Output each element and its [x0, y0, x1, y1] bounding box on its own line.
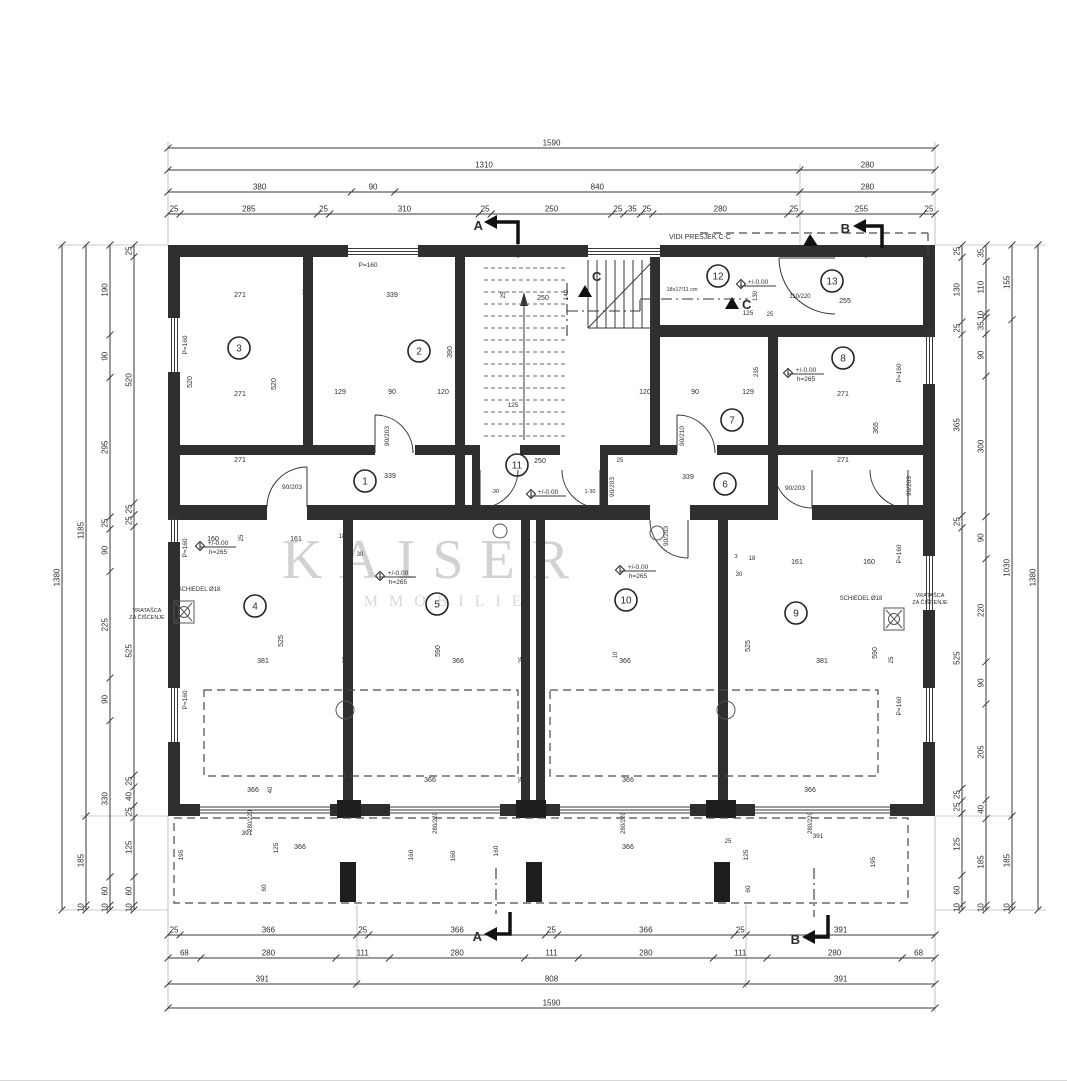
plan-label: 271	[234, 391, 246, 398]
dim-label: 25	[953, 323, 962, 332]
section-b-bottom-label: B	[791, 932, 800, 947]
dim-label: 25	[613, 205, 622, 214]
plan-label: 195	[178, 849, 185, 860]
plan-label: h=265	[389, 579, 408, 586]
plan-label: 195	[870, 856, 877, 867]
wall-room11-right	[600, 455, 608, 505]
plan-label: P=160	[896, 363, 903, 382]
plan-label: 590	[435, 645, 442, 657]
dim-label: 60	[101, 886, 110, 895]
plan-label: 110/220	[789, 294, 811, 300]
plan-label: 10	[302, 290, 309, 296]
dim-label: 205	[977, 745, 986, 759]
plan-label: 40	[268, 786, 274, 793]
dim-label: 25	[170, 926, 179, 935]
plan-label: 25	[519, 776, 525, 783]
dim-label: 391	[256, 975, 270, 984]
plan-label: 590	[872, 647, 879, 659]
floor-plan-drawing: KAISER IMMOBILIE 15901310280380908402802…	[0, 0, 1067, 1080]
plan-label: 25	[725, 839, 732, 845]
wall-hall-top	[180, 445, 375, 455]
plan-label: 366	[452, 658, 464, 665]
door-room2	[375, 415, 413, 453]
plan-label: 520	[187, 376, 194, 388]
dim-label: 90	[977, 533, 986, 542]
plan-label: 365	[873, 422, 880, 434]
room-number: 1	[362, 477, 368, 488]
room-number: 5	[434, 600, 440, 611]
plan-label: 366	[622, 844, 634, 851]
room-number: 12	[712, 272, 724, 283]
dim-label: 380	[253, 183, 267, 192]
plan-label: 90/203	[663, 526, 670, 546]
plan-label: 90/203	[609, 477, 616, 497]
dim-label: 520	[125, 373, 134, 387]
plan-label: 366	[294, 844, 306, 851]
plan-label: 280/220	[621, 812, 627, 834]
dim-label: 40	[125, 791, 134, 800]
dim-label: 391	[834, 975, 848, 984]
section-b-bottom-arrow-icon	[802, 930, 815, 944]
plan-label: 390	[447, 346, 454, 358]
wall-left	[168, 245, 180, 318]
plan-label: 90	[691, 389, 699, 396]
dim-label: 130	[953, 282, 962, 296]
section-a-bottom-arrow-icon	[484, 927, 497, 941]
plan-label: VIDI PRESJEK C-C	[669, 234, 731, 241]
wall-room11-top	[600, 445, 660, 455]
room-number: 7	[729, 416, 735, 427]
dim-label: 110	[977, 280, 986, 293]
wall-room11-top	[465, 445, 480, 455]
dim-label: 111	[734, 949, 747, 958]
plan-label: 25	[617, 458, 624, 464]
plan-label: P=160	[182, 690, 189, 709]
dim-label: 280	[861, 161, 875, 170]
dim-label: 310	[398, 205, 412, 214]
dim-label: 525	[125, 644, 134, 658]
wall-central	[168, 505, 267, 520]
plan-label: P=160	[896, 696, 903, 715]
section-a-bottom-label: A	[473, 929, 483, 944]
dim-label: 366	[262, 926, 276, 935]
plan-label: 25	[239, 534, 245, 541]
dim-label: 25	[953, 790, 962, 799]
wall-hall-top	[415, 445, 455, 455]
plan-label: 271	[234, 292, 246, 299]
party-wall	[536, 520, 545, 816]
dim-label: 185	[1003, 853, 1012, 867]
plan-label: 160	[493, 845, 500, 856]
window-left	[172, 318, 178, 372]
plan-label: 271	[234, 457, 246, 464]
dim-label: 25	[125, 807, 134, 816]
window-bottom	[390, 807, 500, 813]
dim-label: 1030	[1003, 558, 1012, 576]
plan-label: P=160	[359, 262, 378, 269]
dim-label: 60	[953, 885, 962, 894]
plan-label: 271	[837, 457, 849, 464]
plan-label: 25	[767, 312, 774, 318]
dim-label: 285	[242, 205, 256, 214]
pillar	[337, 800, 361, 818]
dim-label: 25	[481, 205, 490, 214]
window-bottom	[755, 807, 890, 813]
dim-label: 25	[319, 205, 328, 214]
dim-label: 68	[180, 949, 189, 958]
wall-bottom	[168, 804, 200, 816]
plan-label: +/-0.00	[748, 279, 769, 286]
plan-label: 125	[273, 842, 280, 853]
plan-label: 120	[639, 389, 651, 396]
wall-left	[168, 372, 180, 516]
plan-label: 129	[334, 389, 346, 396]
plan-label: 140	[564, 289, 570, 300]
dim-label: 25	[736, 926, 745, 935]
balcony-outline-left	[204, 690, 518, 776]
plan-label: 280/220	[248, 810, 254, 832]
pillar	[516, 800, 546, 818]
plan-label: 366	[804, 787, 816, 794]
plan-label: 339	[384, 473, 396, 480]
room-number: 13	[826, 277, 838, 288]
plan-label: 271	[837, 391, 849, 398]
room-number: 2	[416, 347, 422, 358]
dim-label: 25	[125, 246, 134, 255]
dim-label: 25	[125, 504, 134, 513]
dim-label: 40	[977, 804, 986, 813]
plan-label: 160	[207, 536, 219, 543]
plan-label: +/-0.00	[628, 564, 649, 571]
plan-label: 30	[357, 552, 364, 558]
dim-label: 280	[262, 949, 276, 958]
dim-label: 280	[639, 949, 653, 958]
balcony-outline-right	[550, 690, 878, 776]
wall-top	[168, 245, 348, 257]
plan-label: 18	[339, 534, 346, 540]
plan-label: 10	[613, 651, 619, 658]
wall-room11-top	[520, 445, 560, 455]
plan-label: 90/210	[679, 426, 686, 446]
plan-label: 366	[424, 777, 436, 784]
section-a-top-label: A	[474, 218, 484, 233]
room-number: 10	[620, 596, 632, 607]
dim-label: 185	[977, 855, 986, 869]
plan-label: 3	[734, 554, 737, 560]
dim-label: 225	[101, 618, 110, 632]
plan-label: 1-30	[584, 489, 595, 495]
plan-label: 381	[816, 658, 828, 665]
dim-label: 10	[101, 903, 110, 912]
plan-label: 90/203	[906, 476, 913, 496]
wall-right	[923, 610, 935, 688]
section-a-top-elbow	[497, 222, 518, 244]
watermark-sub: IMMOBILIE	[347, 593, 532, 610]
plan-label: +/-0.00	[796, 367, 817, 374]
plan-label: h=265	[629, 573, 648, 580]
dim-label: 1310	[475, 161, 493, 170]
section-b-top-arrow-icon	[853, 219, 866, 233]
plan-label: 120	[437, 389, 449, 396]
section-c-arrow-icon	[578, 285, 592, 297]
plan-label: 130	[753, 290, 759, 301]
window-bottom	[560, 807, 690, 813]
plan-label: 125	[743, 310, 754, 317]
plan-label: ZA ČIŠĆENJE	[129, 614, 165, 621]
section-a-bottom-elbow	[497, 912, 510, 934]
plan-label: 250	[537, 295, 549, 302]
plan-label: VRATAŠCA	[133, 607, 162, 614]
plan-label: 339	[682, 474, 694, 481]
porch-pillar	[714, 862, 730, 902]
dim-label: 125	[953, 837, 962, 851]
plan-label: SCHIEDEL Ø18	[840, 596, 883, 602]
plan-label: 160	[863, 559, 875, 566]
plan-label: 129	[742, 389, 754, 396]
plan-label: 90/203	[384, 426, 391, 446]
dim-label: 280	[450, 949, 464, 958]
plan-label: 520	[271, 378, 278, 390]
dim-label: 25	[547, 926, 556, 935]
dim-label: 10	[77, 903, 86, 912]
dim-label: 255	[855, 205, 869, 214]
plan-label: P=160	[896, 544, 903, 563]
plan-label: 25	[519, 656, 525, 663]
dim-label: 10	[977, 310, 986, 319]
dim-label: 280	[861, 183, 875, 192]
plan-label: 90/203	[282, 484, 302, 491]
dim-label: 111	[357, 949, 370, 958]
section-b-top-elbow	[866, 226, 882, 248]
plan-label: 18	[749, 556, 756, 562]
dim-label: 25	[953, 802, 962, 811]
dim-label: 525	[953, 651, 962, 665]
dim-label: 1590	[543, 139, 561, 148]
plan-label: 18x17/11 cm	[666, 287, 698, 293]
wall-hall-top-right	[660, 445, 677, 455]
dim-label: 25	[953, 517, 962, 526]
window-right	[927, 688, 933, 742]
plan-label: +/-0.00	[388, 570, 409, 577]
plan-label: SCHIEDEL Ø18	[178, 587, 221, 593]
plan-label: 90	[388, 389, 396, 396]
wall-room11-left	[472, 455, 480, 505]
dim-label: 808	[545, 975, 559, 984]
plan-label: 160	[408, 849, 415, 860]
dim-label: 280	[828, 949, 842, 958]
plan-label: 90/203	[785, 485, 805, 492]
dim-label: 366	[639, 926, 653, 935]
plan-label: 90/203	[456, 477, 463, 497]
dim-label: 10	[977, 903, 986, 912]
door-room6-right	[870, 470, 908, 508]
room-number: 11	[512, 461, 523, 472]
plan-label: h=265	[797, 376, 816, 383]
wall-right	[923, 245, 935, 330]
plan-label: 160	[450, 850, 457, 861]
plan-label: ZA ČIŠĆENJE	[912, 599, 948, 606]
wall-room3-room2	[303, 257, 313, 453]
dim-label: 25	[925, 205, 934, 214]
wall-room7-room8	[768, 330, 778, 520]
dim-label: 10	[1003, 903, 1012, 912]
plan-label: 391	[242, 830, 253, 837]
dim-label: 90	[101, 694, 110, 703]
room-number: 8	[840, 354, 846, 365]
dim-label: 25	[125, 776, 134, 785]
plan-label: 366	[622, 777, 634, 784]
plan-label: 235	[754, 366, 760, 377]
dim-label: 68	[914, 949, 923, 958]
plan-label: 30	[736, 572, 743, 578]
plan-label: 161	[290, 536, 302, 543]
plan-label: h=265	[209, 549, 228, 556]
dim-label: 35	[977, 248, 986, 257]
plan-label: 280/220	[433, 812, 439, 834]
dim-label: 366	[450, 926, 464, 935]
plan-label: 25	[501, 291, 507, 298]
plan-label: 525	[278, 635, 285, 647]
dim-label: 60	[125, 886, 134, 895]
plan-label: 255	[839, 298, 851, 305]
dim-label: 111	[545, 949, 558, 958]
plan-label: 366	[619, 658, 631, 665]
dim-label: 1590	[543, 999, 561, 1008]
dim-label: 391	[834, 926, 848, 935]
dim-label: 25	[642, 205, 651, 214]
section-b-bottom-elbow	[815, 915, 828, 937]
plan-label: 125	[508, 402, 519, 409]
dim-label: 25	[953, 246, 962, 255]
room-number: 6	[722, 480, 728, 491]
dim-label: 220	[977, 603, 986, 617]
dim-label: 300	[977, 439, 986, 453]
dim-label: 90	[977, 678, 986, 687]
plan-label: 250	[534, 458, 546, 465]
plan-label: 25	[346, 776, 352, 783]
dim-label: 25	[358, 926, 367, 935]
dim-label: 365	[953, 418, 962, 432]
direction-triangle-icon	[803, 234, 818, 246]
wall-hall-top-right	[717, 445, 923, 455]
window-right	[927, 330, 933, 384]
plan-label: P=160	[182, 538, 189, 557]
room-number: 4	[252, 602, 258, 613]
section-b-top-label: B	[841, 221, 850, 236]
porch-pillar	[340, 862, 356, 902]
dim-label: 1380	[53, 568, 62, 586]
dim-label: 25	[170, 205, 179, 214]
dim-label: 35	[628, 205, 637, 214]
wall-central	[307, 505, 650, 520]
section-a-top-arrow-icon	[484, 215, 497, 229]
room-number: 9	[793, 609, 799, 620]
dim-label: 25	[125, 516, 134, 525]
dim-label: 90	[977, 350, 986, 359]
plan-label: 60	[745, 885, 752, 893]
wall-bottom	[890, 804, 935, 816]
dim-label: 280	[714, 205, 728, 214]
dim-label: 25	[101, 518, 110, 527]
window-top-stairs	[588, 249, 660, 255]
dim-label: 10	[125, 903, 134, 912]
plan-label: VRATAŠCA	[916, 592, 945, 599]
plan-label: 366	[247, 787, 259, 794]
dim-label: 185	[77, 853, 86, 867]
plan-label: 280/220	[808, 812, 814, 834]
floorplan-page: KAISER IMMOBILIE 15901310280380908402802…	[0, 0, 1067, 1081]
section-c-label: C	[592, 269, 602, 284]
dim-label: 125	[125, 840, 134, 854]
porch-pillar	[526, 862, 542, 902]
plan-label: +/-0.00	[538, 489, 559, 496]
plan-label: -30	[491, 489, 499, 495]
dim-label: 90	[101, 351, 110, 360]
plan-label: 60	[261, 884, 268, 892]
dim-label: 90	[369, 183, 378, 192]
dim-label: 155	[1003, 275, 1012, 289]
plan-label: 125	[743, 849, 750, 860]
party-wall	[521, 520, 530, 816]
dim-label: 840	[591, 183, 605, 192]
dim-label: 1185	[77, 521, 86, 539]
staircase	[484, 260, 655, 440]
plan-label: P=160	[182, 335, 189, 354]
window-bottom	[200, 807, 330, 813]
room-number: 3	[236, 344, 242, 355]
plan-label: 525	[745, 640, 752, 652]
window-left	[172, 688, 178, 742]
plan-label: 25	[889, 656, 895, 663]
wall-top	[660, 245, 935, 257]
dim-label: 295	[101, 440, 110, 454]
plan-label: 161	[791, 559, 803, 566]
plan-label: 381	[257, 658, 269, 665]
wall-central	[690, 505, 772, 520]
wall-room13-room8	[660, 325, 935, 337]
pillar	[706, 800, 736, 818]
wall-central	[812, 505, 935, 520]
wall-right	[923, 384, 935, 556]
dim-label: 250	[545, 205, 559, 214]
dim-label: 330	[101, 792, 110, 806]
plan-label: 391	[813, 833, 824, 840]
plan-label: 25	[343, 656, 349, 663]
wall-room10-room9	[718, 520, 728, 804]
window-top	[348, 249, 418, 255]
dim-label: 90	[101, 545, 110, 554]
dim-label: 35	[977, 321, 986, 330]
dim-label: 25	[789, 205, 798, 214]
plan-label: 339	[386, 292, 398, 299]
dim-label: 190	[101, 283, 110, 297]
dim-label: 1380	[1029, 568, 1038, 586]
dim-label: 10	[953, 903, 962, 912]
wall-top	[418, 245, 588, 257]
